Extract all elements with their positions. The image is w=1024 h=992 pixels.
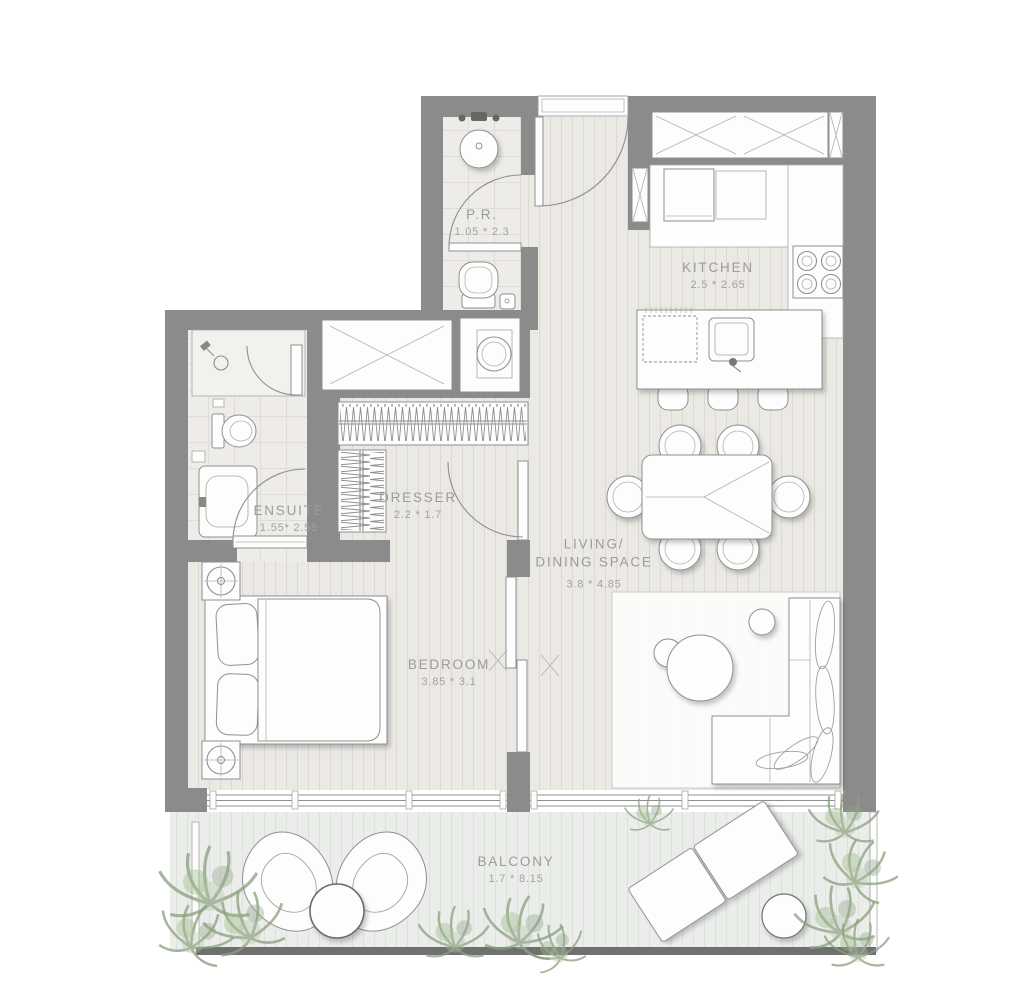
pr-bin <box>500 294 515 309</box>
bed <box>205 596 387 744</box>
hanging-rail-top <box>338 402 528 445</box>
side-table <box>749 609 775 635</box>
nightstand-top <box>202 562 240 600</box>
wardrobe-closet <box>322 320 452 390</box>
balcony-side-table <box>762 894 806 938</box>
pillow <box>215 603 259 666</box>
kitchen-appliance-2 <box>716 171 766 219</box>
balcony-table <box>310 884 364 938</box>
kitchen-upper-cabinet <box>652 112 828 158</box>
washing-machine <box>460 318 520 392</box>
floor-plan: P.R. 1.05 * 2.3 KITCHEN 2.5 * 2.65 ENSUI… <box>0 0 1024 992</box>
kitchen-island <box>637 307 822 389</box>
nightstand-bottom <box>202 741 240 779</box>
shower <box>192 330 305 396</box>
pillow <box>216 673 259 735</box>
stove <box>793 246 843 298</box>
floor-plan-drawing <box>0 0 1024 992</box>
hanging-rail-left <box>338 450 386 532</box>
dining-table <box>642 455 772 539</box>
pr-toilet <box>459 262 498 308</box>
kitchen-appliance <box>664 169 714 221</box>
entry-door-leaf <box>535 117 543 206</box>
balcony-edge <box>196 947 876 955</box>
duvet <box>258 599 380 741</box>
